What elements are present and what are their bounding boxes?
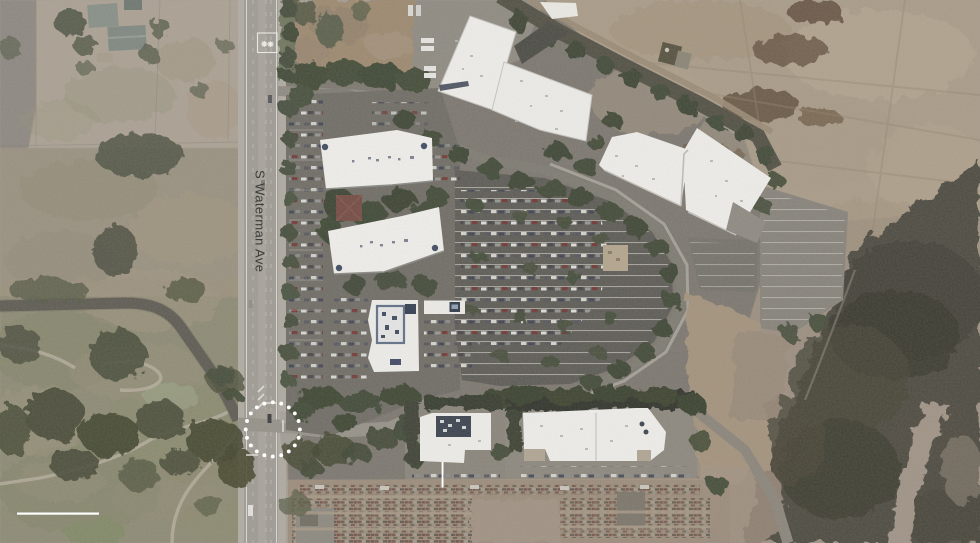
svg-text:S Waterman Ave: S Waterman Ave	[253, 170, 268, 272]
